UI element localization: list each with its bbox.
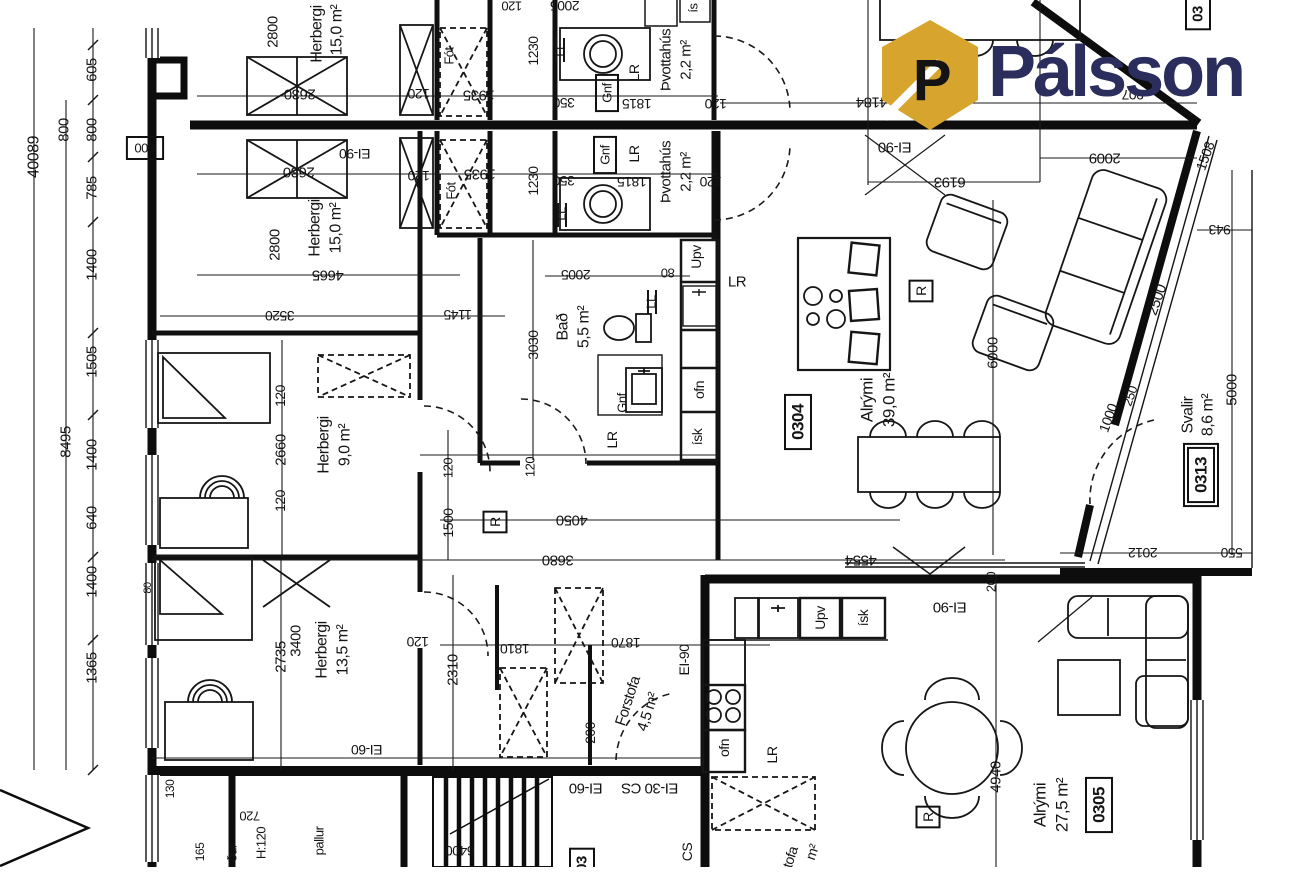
fixture-label: Upv (688, 245, 704, 269)
svg-text:1870: 1870 (611, 635, 641, 651)
svg-text:4554: 4554 (845, 552, 877, 569)
dimension-label: 120 (407, 168, 430, 184)
dimension-label: 1500 (440, 508, 456, 538)
svg-text:120: 120 (272, 384, 288, 407)
svg-text:120: 120 (407, 86, 430, 102)
svg-text:Fót: Fót (442, 46, 457, 64)
svg-text:LR: LR (604, 431, 620, 448)
dimension-label: 2005 (550, 0, 580, 14)
bed-icon (155, 353, 270, 640)
palsson-logo: P Pálsson (882, 20, 1243, 132)
room-label: Herbergi (316, 416, 333, 473)
room-number-tag: 03 (570, 849, 594, 867)
svg-text:0304: 0304 (789, 403, 808, 440)
dimension-label: 120 (407, 86, 430, 102)
svg-text:1365: 1365 (84, 652, 101, 684)
annotation-label: ður (225, 843, 240, 861)
dining-table-icon (858, 421, 1000, 508)
svg-text:LR: LR (626, 64, 642, 81)
svg-text:5000: 5000 (1224, 374, 1241, 406)
dimension-label: 3680 (542, 552, 574, 569)
dimension-label: 120 (272, 489, 288, 512)
svg-text:03: 03 (574, 856, 591, 867)
svg-text:EI-90: EI-90 (339, 146, 371, 162)
svg-text:3520: 3520 (265, 308, 295, 324)
room-label: 5,5 m² (576, 305, 593, 349)
svg-text:2630: 2630 (284, 86, 316, 103)
room-number-tag: 0304 (785, 395, 811, 449)
dimension-label: 4554 (845, 552, 877, 569)
svg-text:Gnf: Gnf (615, 392, 630, 412)
svg-text:Upv: Upv (688, 245, 704, 269)
room-label: 2,2 m² (678, 152, 695, 192)
svg-text:6193: 6193 (934, 174, 966, 191)
dimension-label: 80 (142, 582, 154, 594)
room-label: Herbergi (314, 621, 331, 678)
dimension-label: 120 (441, 458, 456, 478)
fixture-label: ísk (689, 427, 705, 445)
kitchen-island-icon (798, 238, 890, 370)
svg-text:550: 550 (1220, 545, 1243, 561)
room-label: 2,2 m² (678, 40, 695, 80)
svg-text:2800: 2800 (267, 229, 284, 261)
dimension-label: 605 (84, 58, 101, 82)
svg-text:ísk: ísk (689, 427, 705, 445)
dimension-label: 1400 (84, 249, 101, 281)
dimension-label: 8495 (58, 426, 75, 458)
dimension-label: 1815 (622, 96, 652, 112)
svg-text:2012: 2012 (1128, 545, 1158, 561)
room-label: Alrými (1031, 783, 1050, 827)
section-arrow (0, 790, 88, 866)
svg-text:3030: 3030 (525, 330, 541, 360)
svg-text:Alrými: Alrými (858, 378, 877, 422)
room-label: Herbergi (309, 5, 326, 62)
svg-text:EI-90: EI-90 (933, 599, 967, 616)
coffee-table-icon (1058, 660, 1120, 715)
fixture-label: Gnf (594, 137, 616, 173)
dimension-label: 1935 (464, 166, 496, 183)
fixture-label: Upv (812, 606, 828, 630)
dimension-label: 165 (193, 842, 207, 861)
toilet-icon (604, 314, 651, 342)
room-label: Þvottahús (658, 141, 675, 203)
dimension-label: 3030 (525, 330, 541, 360)
dimension-label: 80 (661, 266, 675, 281)
palsson-logo-icon: P (882, 20, 980, 132)
fire-rating-label: EI-60 (569, 780, 603, 797)
svg-text:6000: 6000 (985, 337, 1002, 369)
svg-text:80: 80 (142, 582, 154, 594)
dimension-label: 1230 (525, 166, 541, 196)
room-label: Svalir (1180, 395, 1197, 433)
svg-text:943: 943 (1208, 222, 1231, 238)
svg-text:LR: LR (728, 274, 747, 291)
svg-text:2630: 2630 (283, 164, 315, 181)
fixture-label: LL (554, 207, 569, 221)
svg-text:EI-90: EI-90 (676, 644, 692, 676)
svg-text:R: R (913, 286, 929, 296)
svg-text:13,5 m²: 13,5 m² (335, 623, 352, 675)
annotation-label: H:120 (254, 827, 269, 859)
dimension-label: 640 (84, 506, 101, 530)
svg-text:1230: 1230 (525, 36, 541, 66)
fixture-label: LL (644, 295, 659, 309)
dimension-label: 943 (1208, 222, 1231, 238)
dimension-label: 800 (84, 118, 101, 142)
dimension-label: 4050 (556, 512, 588, 529)
fixture-label: ísk (855, 608, 871, 626)
svg-text:720: 720 (240, 809, 260, 824)
svg-text:80: 80 (661, 266, 675, 281)
fixture-label: LL (553, 43, 568, 57)
fixture-label: Fót (444, 181, 459, 199)
svg-text:CS: CS (679, 843, 695, 862)
svg-text:Herbergi: Herbergi (314, 621, 331, 678)
fire-rating-label: EI-90 (676, 644, 692, 676)
svg-text:120: 120 (272, 489, 288, 512)
svg-text:Svalir: Svalir (1180, 395, 1197, 433)
svg-text:R: R (487, 517, 503, 527)
svg-text:m²: m² (802, 841, 822, 861)
fixture-label: LR (626, 145, 642, 162)
svg-text:200: 200 (582, 721, 598, 744)
dimension-label: 720 (240, 809, 260, 824)
room-label: 9,0 m² (337, 423, 354, 467)
dimension-label: 2660 (273, 434, 290, 466)
dimension-label: 1935 (463, 87, 495, 104)
svg-text:Bað: Bað (555, 313, 572, 341)
desk-icon (160, 476, 253, 760)
dimension-label: 6400 (445, 843, 475, 859)
room-label: 13,5 m² (335, 623, 352, 675)
dimension-label: 2012 (1128, 545, 1158, 561)
svg-text:4940: 4940 (988, 761, 1005, 793)
dimension-label: 120 (406, 634, 429, 650)
svg-text:pallur: pallur (312, 825, 327, 855)
svg-text:40089: 40089 (26, 135, 43, 178)
svg-text:ður: ður (225, 843, 240, 861)
svg-text:120: 120 (704, 96, 727, 112)
svg-text:4050: 4050 (556, 512, 588, 529)
svg-text:Upv: Upv (812, 606, 828, 630)
svg-text:0313: 0313 (1192, 457, 1211, 493)
svg-text:EI-30 CS: EI-30 CS (621, 780, 678, 797)
dimension-label: 1400 (84, 439, 101, 471)
palsson-logo-text: Pálsson (988, 20, 1243, 124)
svg-text:8495: 8495 (58, 426, 75, 458)
dimension-label: 2009 (1089, 150, 1121, 167)
svg-text:LL: LL (554, 207, 569, 221)
svg-text:5,5 m²: 5,5 m² (576, 305, 593, 349)
dimension-label: 1870 (611, 635, 641, 651)
dimension-label: 2310 (445, 654, 462, 686)
dimension-label: 1505 (84, 346, 101, 378)
fixture-label: LR (604, 431, 620, 448)
svg-text:R: R (920, 812, 936, 822)
fixture-label: R (484, 512, 507, 533)
svg-text:4665: 4665 (312, 267, 344, 284)
svg-text:200: 200 (984, 572, 999, 592)
fire-rating-label: CS (679, 843, 695, 862)
svg-text:9,0 m²: 9,0 m² (337, 423, 354, 467)
svg-text:120: 120 (502, 0, 522, 14)
dimension-label: 40089 (26, 135, 43, 178)
svg-text:1815: 1815 (617, 174, 647, 190)
svg-text:ís: ís (686, 2, 701, 12)
dimension-label: 120 (704, 96, 727, 112)
svg-text:1230: 1230 (525, 166, 541, 196)
room-label: 39,0 m² (880, 372, 899, 427)
dimension-label: 1810 (500, 641, 530, 657)
dimension-label: 4940 (988, 761, 1005, 793)
dimension-label: 200 (984, 572, 999, 592)
windows (144, 28, 1205, 862)
fire-rating-label: EI-90 (339, 146, 371, 162)
corner-sofa-icon (1068, 596, 1188, 728)
svg-text:15,0 m²: 15,0 m² (329, 3, 346, 55)
room-label: Herbergi (307, 199, 324, 256)
svg-text:130: 130 (163, 779, 177, 798)
fixture-label: R (917, 807, 940, 828)
svg-text:6400: 6400 (445, 843, 475, 859)
svg-text:165: 165 (193, 842, 207, 861)
appliance-column (681, 240, 718, 460)
svg-text:1935: 1935 (463, 87, 495, 104)
svg-text:LL: LL (553, 43, 568, 57)
balcony-rail (1090, 136, 1252, 568)
dimension-label: 2800 (267, 229, 284, 261)
svg-text:tofa: tofa (779, 844, 801, 867)
fixture-label: LR (764, 746, 780, 763)
svg-text:Þvottahús: Þvottahús (658, 29, 675, 91)
svg-text:Gnf: Gnf (598, 144, 613, 164)
svg-text:2660: 2660 (273, 434, 290, 466)
annotation-label: m² (802, 841, 822, 861)
dimension-label: 5000 (1224, 374, 1241, 406)
annotation-label: pallur (312, 825, 327, 855)
svg-text:Alrými: Alrými (1031, 783, 1050, 827)
svg-text:2005: 2005 (550, 0, 580, 14)
dimension-label: 800 (56, 118, 73, 142)
dimension-label: 350 (552, 173, 575, 189)
room-label: Þvottahús (658, 29, 675, 91)
svg-text:640: 640 (84, 506, 101, 530)
dimension-label: 3400 (288, 625, 305, 657)
fire-rating-label: EI-90 (933, 599, 967, 616)
svg-text:1810: 1810 (500, 641, 530, 657)
fixture-label: ofn (691, 381, 707, 399)
svg-text:ofn: ofn (691, 381, 707, 399)
svg-text:Fót: Fót (444, 181, 459, 199)
svg-text:Þvottahús: Þvottahús (658, 141, 675, 203)
dimension-label: 4665 (312, 267, 344, 284)
svg-text:120: 120 (406, 634, 429, 650)
fixture-label: Fót (442, 46, 457, 64)
annotation-label: tofa (779, 844, 801, 867)
svg-text:2,2 m²: 2,2 m² (678, 152, 695, 192)
dimension-label: 120 (502, 0, 522, 14)
svg-text:3680: 3680 (542, 552, 574, 569)
room-label: Bað (555, 313, 572, 341)
dimension-label: 200 (582, 721, 598, 744)
svg-text:1935: 1935 (464, 166, 496, 183)
dimension-label: 2005 (561, 267, 591, 283)
svg-text:605: 605 (84, 58, 101, 82)
svg-text:P: P (913, 48, 951, 113)
svg-text:LL: LL (644, 295, 659, 309)
svg-text:1815: 1815 (622, 96, 652, 112)
svg-text:0305: 0305 (1090, 787, 1109, 823)
svg-text:15,0 m²: 15,0 m² (328, 201, 345, 253)
room-label: 15,0 m² (329, 3, 346, 55)
dimension-label: 600 (127, 137, 163, 159)
sofa-icon (1042, 167, 1169, 347)
svg-text:120: 120 (523, 457, 538, 477)
room-number-tag: 0313 (1184, 444, 1218, 506)
fixture-label: ís (686, 2, 701, 12)
svg-text:2500: 2500 (1144, 282, 1171, 317)
dimension-label: 350 (552, 95, 575, 111)
fixture-label: Gnf (615, 392, 630, 412)
dimension-label: 1815 (617, 174, 647, 190)
svg-text:1400: 1400 (84, 566, 101, 598)
svg-text:LR: LR (626, 145, 642, 162)
room-number-tag: 0305 (1086, 778, 1112, 832)
dimension-label: 130 (163, 779, 177, 798)
svg-text:Herbergi: Herbergi (316, 416, 333, 473)
dimension-label: 2630 (284, 86, 316, 103)
svg-text:Herbergi: Herbergi (309, 5, 326, 62)
svg-text:2,2 m²: 2,2 m² (678, 40, 695, 80)
dimension-label: 1230 (525, 36, 541, 66)
svg-text:2005: 2005 (561, 267, 591, 283)
dimension-label: 1400 (84, 566, 101, 598)
dimension-label: 120 (272, 384, 288, 407)
svg-text:39,0 m²: 39,0 m² (880, 372, 899, 427)
svg-text:120: 120 (407, 168, 430, 184)
svg-text:350: 350 (552, 95, 575, 111)
svg-text:2800: 2800 (265, 16, 282, 48)
dimension-label: 6193 (934, 174, 966, 191)
dimension-label: 785 (84, 176, 101, 200)
room-label: 8,6 m² (1200, 393, 1217, 437)
svg-text:785: 785 (84, 176, 101, 200)
svg-text:800: 800 (56, 118, 73, 142)
svg-text:1500: 1500 (440, 508, 456, 538)
svg-text:2310: 2310 (445, 654, 462, 686)
dimension-label: 1145 (443, 307, 472, 323)
svg-text:Herbergi: Herbergi (307, 199, 324, 256)
dimension-label: 120 (699, 174, 722, 190)
room-label: 15,0 m² (328, 201, 345, 253)
fire-rating-label: EI-60 (351, 742, 383, 758)
svg-text:120: 120 (441, 458, 456, 478)
svg-text:ísk: ísk (855, 608, 871, 626)
dimension-label: 2630 (283, 164, 315, 181)
fire-rating-label: EI-30 CS (621, 780, 678, 797)
svg-text:2009: 2009 (1089, 150, 1121, 167)
fire-rating-label: EI-90 (878, 139, 912, 156)
svg-text:ofn: ofn (716, 739, 732, 757)
fixture-label: LR (728, 274, 747, 291)
svg-text:120: 120 (699, 174, 722, 190)
svg-text:1400: 1400 (84, 439, 101, 471)
svg-text:EI-90: EI-90 (878, 139, 912, 156)
round-table-icon (882, 678, 1022, 818)
dimension-label: 2800 (265, 16, 282, 48)
fixture-label: R (910, 281, 933, 302)
room-label: Alrými (858, 378, 877, 422)
svg-text:1400: 1400 (84, 249, 101, 281)
svg-text:600: 600 (135, 141, 155, 156)
svg-text:EI-60: EI-60 (569, 780, 603, 797)
svg-text:27,5 m²: 27,5 m² (1053, 777, 1072, 832)
dimension-label: 6000 (985, 337, 1002, 369)
dimension-label: 2500 (1144, 282, 1171, 317)
svg-text:LR: LR (764, 746, 780, 763)
sink-icon (598, 355, 662, 415)
svg-text:Gnf: Gnf (600, 82, 615, 102)
svg-text:350: 350 (552, 173, 575, 189)
svg-text:800: 800 (84, 118, 101, 142)
svg-text:3400: 3400 (288, 625, 305, 657)
dimension-label: 3520 (265, 308, 295, 324)
svg-text:1145: 1145 (443, 307, 472, 323)
svg-text:EI-60: EI-60 (351, 742, 383, 758)
svg-text:8,6 m²: 8,6 m² (1200, 393, 1217, 437)
svg-text:1505: 1505 (84, 346, 101, 378)
dimension-label: 120 (523, 457, 538, 477)
room-label: 27,5 m² (1053, 777, 1072, 832)
dimension-label: 1365 (84, 652, 101, 684)
fixture-label: ofn (716, 739, 732, 757)
dimension-label: 550 (1220, 545, 1243, 561)
fixture-label: LR (626, 64, 642, 81)
svg-text:H:120: H:120 (254, 827, 269, 859)
